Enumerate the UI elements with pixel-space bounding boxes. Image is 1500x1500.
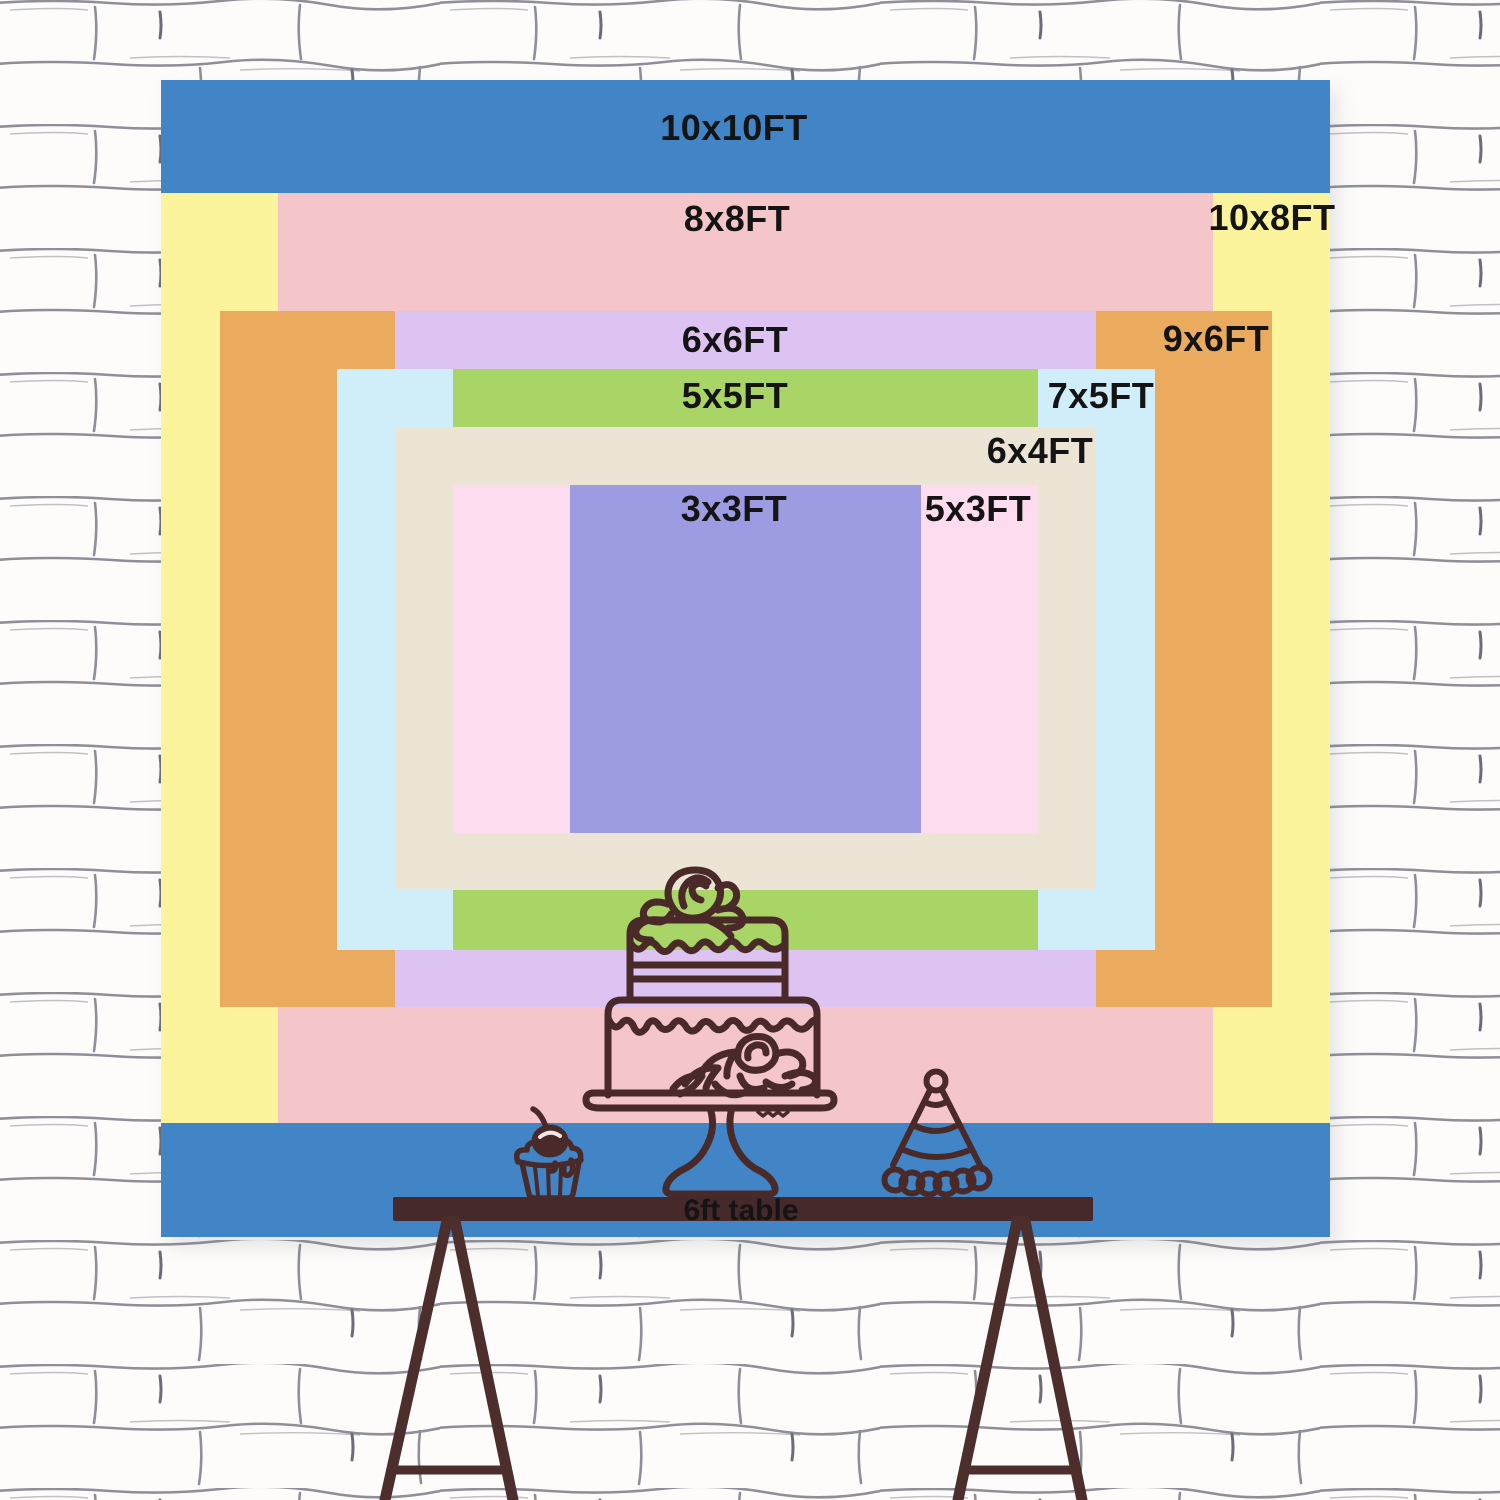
table-size-label: 6ft table bbox=[683, 1194, 798, 1228]
label-10x10ft: 10x10FT bbox=[660, 107, 808, 149]
backdrop-size-chart: 10x10FT 10x8FT 8x8FT 9x6FT 6x6FT 7x5FT 5… bbox=[0, 0, 1500, 1500]
table-legs bbox=[385, 1221, 1082, 1500]
label-10x8ft: 10x8FT bbox=[1208, 197, 1335, 239]
label-5x5ft: 5x5FT bbox=[682, 375, 789, 417]
label-9x6ft: 9x6FT bbox=[1163, 318, 1270, 360]
layer-3x3ft bbox=[570, 485, 921, 833]
label-6x4ft: 6x4FT bbox=[987, 430, 1094, 472]
label-3x3ft: 3x3FT bbox=[681, 488, 788, 530]
label-6x6ft: 6x6FT bbox=[682, 319, 789, 361]
label-5x3ft: 5x3FT bbox=[925, 488, 1032, 530]
cupcake-icon bbox=[505, 1105, 595, 1200]
birthday-cake-icon bbox=[580, 862, 845, 1197]
party-hat-icon bbox=[880, 1068, 995, 1198]
label-8x8ft: 8x8FT bbox=[684, 198, 791, 240]
label-7x5ft: 7x5FT bbox=[1048, 375, 1155, 417]
trestle-table bbox=[370, 1195, 1110, 1500]
